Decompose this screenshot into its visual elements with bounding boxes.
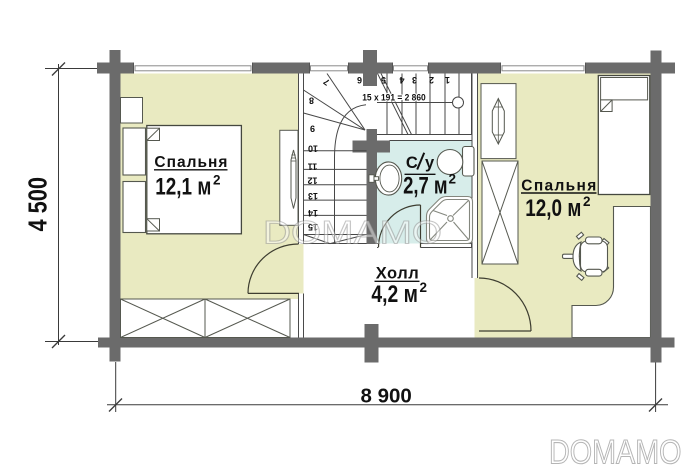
svg-text:10: 10: [308, 143, 318, 153]
svg-text:Спальня: Спальня: [154, 154, 227, 171]
svg-text:5: 5: [381, 75, 386, 85]
svg-text:9: 9: [310, 124, 315, 134]
svg-text:2,7 м: 2,7 м: [403, 173, 448, 200]
svg-text:DOMAMO: DOMAMO: [549, 434, 682, 467]
svg-text:у: у: [425, 154, 435, 172]
svg-text:4,2 м: 4,2 м: [371, 281, 418, 308]
svg-text:8 900: 8 900: [361, 384, 412, 407]
svg-text:2: 2: [429, 75, 434, 85]
svg-text:12: 12: [307, 176, 317, 186]
svg-text:4: 4: [399, 75, 404, 85]
svg-text:2: 2: [583, 194, 591, 209]
svg-text:Холл: Холл: [376, 265, 419, 283]
svg-text:DOMAMO: DOMAMO: [263, 215, 442, 251]
svg-text:11: 11: [308, 162, 318, 172]
svg-text:13: 13: [308, 191, 318, 201]
svg-text:15 x 191 = 2 860: 15 x 191 = 2 860: [362, 93, 426, 103]
svg-text:4 500: 4 500: [23, 177, 53, 232]
svg-text:2: 2: [449, 172, 457, 187]
svg-text:С: С: [406, 154, 418, 172]
svg-text:3: 3: [412, 75, 417, 85]
svg-text:2: 2: [213, 173, 221, 188]
svg-text:6: 6: [357, 75, 362, 85]
svg-text:1: 1: [445, 75, 450, 85]
svg-text:8: 8: [309, 96, 314, 106]
svg-text:12,0 м: 12,0 м: [525, 195, 581, 222]
svg-text:12,1 м: 12,1 м: [155, 174, 211, 201]
svg-text:2: 2: [420, 280, 428, 295]
